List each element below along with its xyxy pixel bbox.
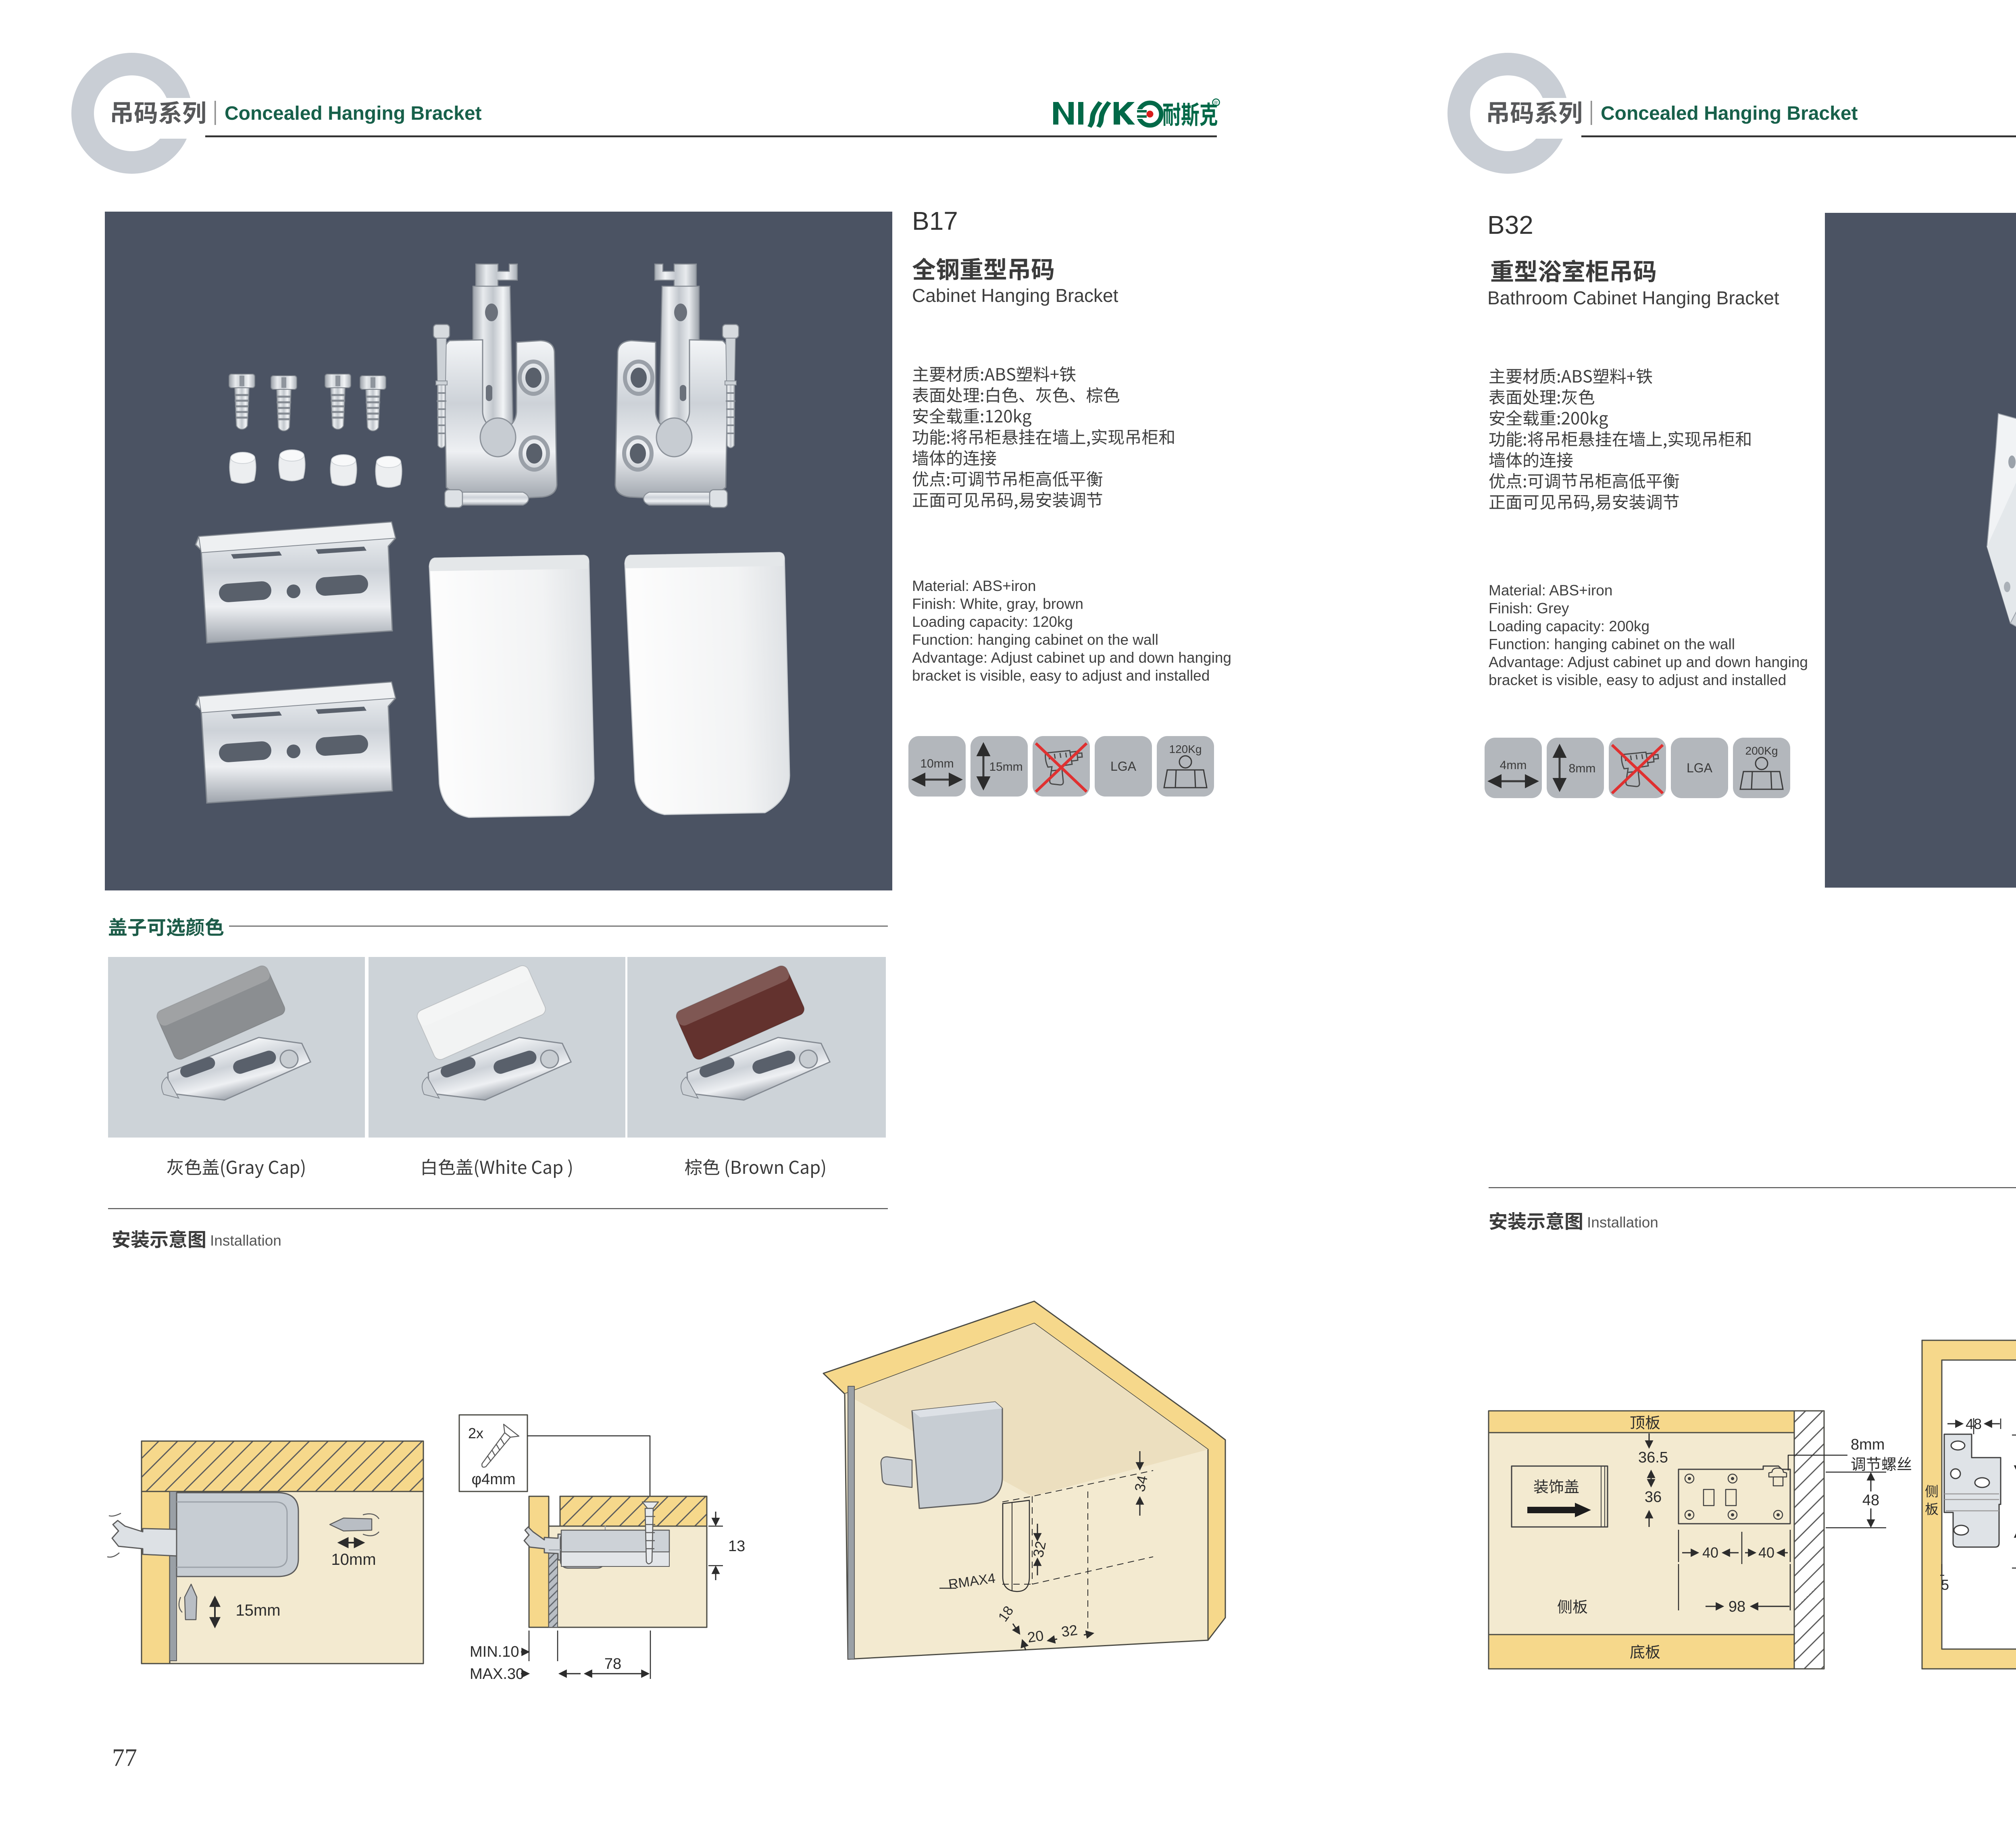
svg-text:5: 5 — [1941, 1577, 1949, 1593]
svg-text:Advantage: Adjust cabinet up a: Advantage: Adjust cabinet up and down ha… — [1489, 654, 1808, 670]
svg-text:32: 32 — [1060, 1622, 1079, 1640]
svg-text:Finish: Grey: Finish: Grey — [1489, 600, 1569, 617]
svg-text:34: 34 — [1131, 1474, 1151, 1493]
svg-text:R: R — [1214, 100, 1218, 106]
svg-text:Concealed Hanging Bracket: Concealed Hanging Bracket — [1601, 103, 1858, 124]
svg-text:φ4mm: φ4mm — [471, 1471, 515, 1488]
svg-text:LGA: LGA — [1110, 759, 1137, 774]
svg-text:13: 13 — [728, 1538, 745, 1555]
svg-text:8mm: 8mm — [1569, 762, 1596, 775]
svg-text:8mm: 8mm — [1851, 1436, 1885, 1453]
svg-text:32: 32 — [1030, 1540, 1049, 1559]
svg-text:Cabinet Hanging Bracket: Cabinet Hanging Bracket — [912, 285, 1118, 306]
svg-text:bracket is visible, easy to ad: bracket is visible, easy to adjust and i… — [912, 668, 1210, 684]
svg-text:15mm: 15mm — [989, 760, 1023, 774]
svg-text:Installation: Installation — [1587, 1214, 1658, 1231]
svg-text:36.5: 36.5 — [1638, 1449, 1668, 1466]
svg-text:Concealed Hanging Bracket: Concealed Hanging Bracket — [225, 103, 482, 124]
svg-text:Loading capacity: 200kg: Loading capacity: 200kg — [1489, 618, 1649, 634]
svg-text:Advantage: Adjust cabinet up a: Advantage: Adjust cabinet up and down ha… — [912, 649, 1231, 666]
svg-text:MAX.30: MAX.30 — [470, 1666, 524, 1683]
svg-text:Loading capacity: 120kg: Loading capacity: 120kg — [912, 614, 1073, 630]
svg-text:Function: hanging cabinet on t: Function: hanging cabinet on the wall — [1489, 636, 1735, 653]
svg-text:48: 48 — [1862, 1492, 1879, 1509]
svg-text:bracket is visible, easy to ad: bracket is visible, easy to adjust and i… — [1489, 672, 1786, 688]
svg-text:98: 98 — [1729, 1598, 1745, 1615]
svg-text:10mm: 10mm — [331, 1551, 376, 1568]
svg-text:2x: 2x — [468, 1425, 483, 1441]
svg-text:Installation: Installation — [210, 1232, 281, 1249]
svg-text:Bathroom Cabinet Hanging Brack: Bathroom Cabinet Hanging Bracket — [1487, 287, 1779, 308]
svg-text:200Kg: 200Kg — [1745, 745, 1778, 757]
svg-text:77: 77 — [112, 1744, 137, 1772]
svg-text:Material: ABS+iron: Material: ABS+iron — [912, 578, 1036, 594]
svg-text:Function: hanging cabinet on t: Function: hanging cabinet on the wall — [912, 632, 1158, 648]
svg-text:36: 36 — [1645, 1489, 1662, 1506]
svg-text:20: 20 — [1027, 1627, 1045, 1646]
svg-text:10mm: 10mm — [920, 757, 954, 770]
svg-text:Finish: White, gray, brown: Finish: White, gray, brown — [912, 596, 1083, 612]
svg-text:40: 40 — [1702, 1544, 1718, 1561]
svg-text:15mm: 15mm — [235, 1602, 280, 1619]
svg-text:Material: ABS+iron: Material: ABS+iron — [1489, 582, 1612, 599]
svg-text:120Kg: 120Kg — [1169, 743, 1202, 755]
svg-text:4mm: 4mm — [1500, 759, 1527, 772]
svg-text:LGA: LGA — [1687, 761, 1713, 775]
svg-text:B17: B17 — [912, 206, 958, 235]
svg-text:40: 40 — [1758, 1544, 1774, 1561]
svg-text:MIN.10: MIN.10 — [470, 1643, 519, 1660]
svg-text:78: 78 — [604, 1656, 621, 1672]
svg-text:B32: B32 — [1487, 210, 1533, 239]
